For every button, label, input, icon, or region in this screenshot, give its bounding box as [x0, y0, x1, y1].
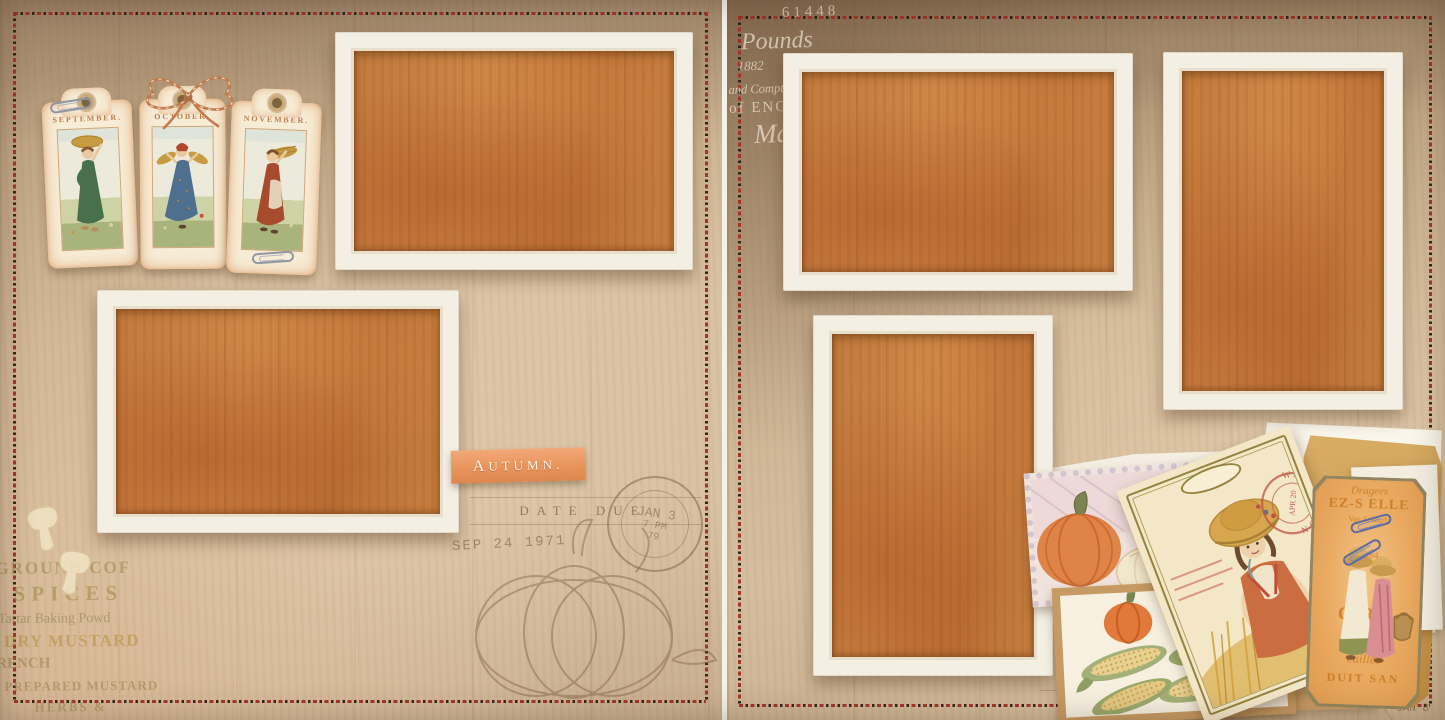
september-figure — [58, 128, 123, 249]
photo-frame-right-2 — [1163, 52, 1403, 410]
ad-line: RENCH — [0, 654, 209, 673]
address-line — [1170, 559, 1222, 581]
ad-line: PREPARED MUSTARD — [4, 677, 209, 695]
french-ticket-inner: Dragees EZ-S ELLE Van Schaerb No 84 C RY… — [1308, 478, 1424, 707]
tag-grommet — [269, 95, 286, 112]
postmark-line: 79 — [646, 531, 659, 544]
october-figure — [153, 127, 214, 246]
photo-frame-left-1 — [335, 32, 693, 270]
twine-bow — [122, 60, 252, 132]
photo-placeholder — [802, 72, 1114, 272]
photo-placeholder — [354, 51, 674, 251]
address-line — [1178, 582, 1224, 601]
september-figure-art — [57, 127, 124, 252]
ticket-line: EZ-S ELLE — [1315, 495, 1423, 515]
photo-frame-right-3 — [813, 315, 1053, 676]
ad-line: Tartar Baking Powd — [0, 610, 209, 628]
vintage-ad-text: GROUND COF SPICES Tartar Baking Powd DRY… — [0, 557, 210, 716]
tag-label: SEPTEMBER. — [42, 112, 132, 125]
stitch-border-left-top — [14, 12, 706, 15]
photo-placeholder — [1182, 71, 1384, 391]
postmark-line: JAN 3 — [636, 503, 677, 523]
french-ticket: Dragees EZ-S ELLE Van Schaerb No 84 C RY… — [1305, 475, 1427, 710]
ad-line: DRY MUSTARD — [4, 630, 209, 652]
address-line — [1174, 567, 1233, 591]
script-line: 61448 — [782, 0, 1006, 22]
postmark-line: 7 PM — [642, 519, 667, 533]
ad-line: HERBS & — [35, 698, 210, 716]
scrapbook-canvas: GROUND COF SPICES Tartar Baking Powd DRY… — [0, 0, 1445, 720]
photo-placeholder — [832, 334, 1034, 657]
photo-placeholder — [116, 309, 440, 514]
november-figure-art — [241, 128, 307, 252]
november-figure — [242, 129, 306, 249]
small-pumpkin — [1102, 587, 1153, 644]
cartouche-oval — [1177, 457, 1245, 500]
october-figure-art — [151, 126, 214, 249]
ad-line: GROUND COF — [0, 557, 208, 579]
svg-text:APR 20: APR 20 — [1287, 490, 1298, 516]
ad-line: SPICES — [14, 580, 209, 607]
photo-frame-right-1 — [783, 53, 1133, 291]
autumn-label: AUTUMN. — [451, 447, 586, 483]
photo-frame-left-2 — [97, 290, 459, 533]
